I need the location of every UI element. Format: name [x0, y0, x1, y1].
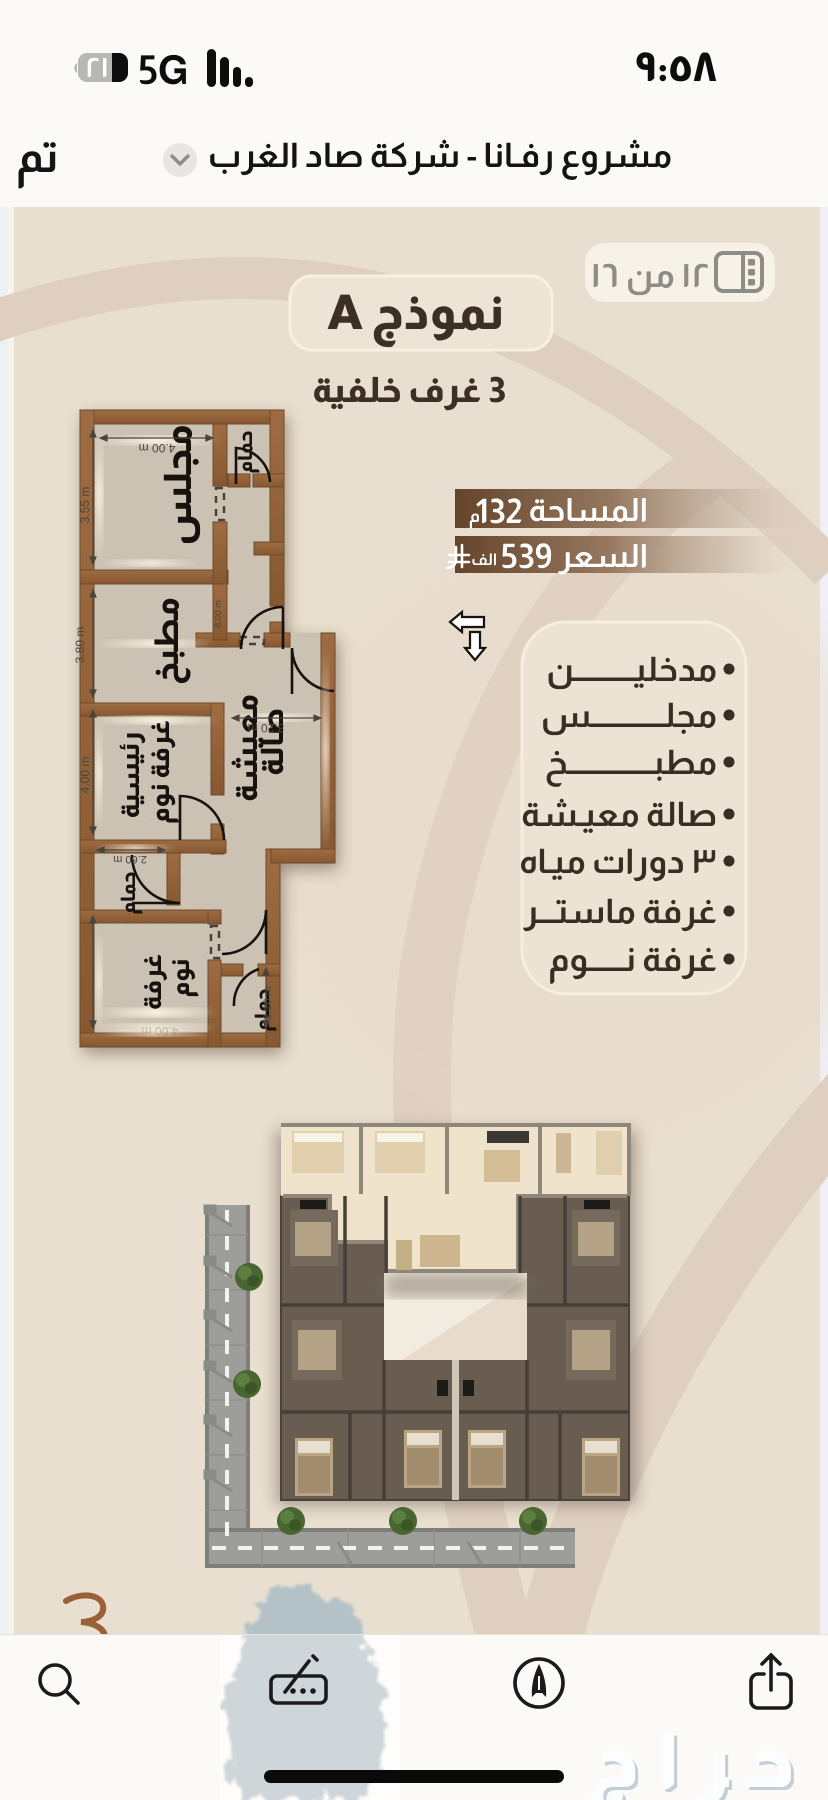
svg-text:2.60 m: 2.60 m [113, 853, 147, 865]
svg-text:8.00 m: 8.00 m [213, 600, 223, 628]
svg-text:3.55 m: 3.55 m [78, 487, 92, 524]
svg-text:3.20 m: 3.20 m [248, 721, 285, 735]
svg-text:4.00 m: 4.00 m [142, 1024, 179, 1038]
svg-text:3.80 m: 3.80 m [73, 627, 87, 664]
svg-text:4.00 m: 4.00 m [139, 441, 176, 455]
svg-text:4.00 m: 4.00 m [78, 757, 92, 794]
svg-text:2.20 m: 2.20 m [262, 986, 274, 1020]
